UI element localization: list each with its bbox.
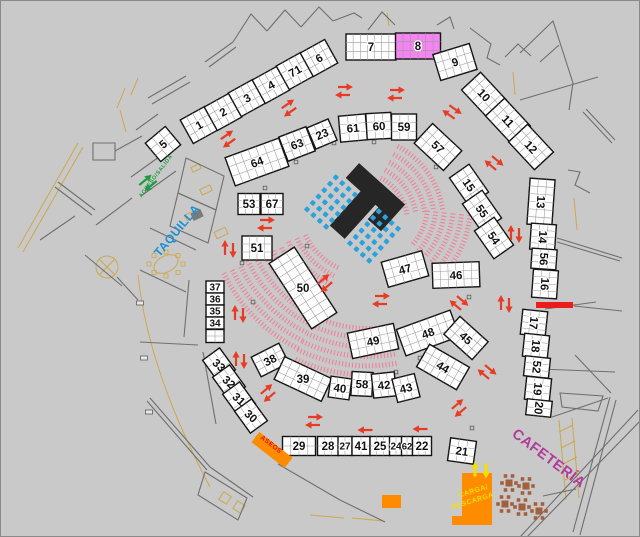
booth-34: 34 [206,317,224,330]
booth-number: 22 [416,441,429,453]
table-chair [517,484,521,488]
booth-number: 19 [530,382,543,396]
hatch-dash [467,219,472,220]
table-chair [541,516,545,520]
booth-grid [206,330,224,343]
booth-number: 59 [398,122,411,134]
table-chair [528,477,532,481]
table-top [506,480,513,487]
hatch-dash [425,211,430,212]
table-chair [504,488,508,492]
hatch-dash [459,215,464,216]
column-marker [434,165,438,169]
column-marker [251,300,255,304]
hatch-dash [347,353,348,358]
door-marker [146,410,153,414]
table-chair [496,502,500,506]
column-marker [263,186,267,190]
booth-36: 36 [206,293,224,306]
hatch-dash [342,361,343,366]
table-top [519,504,526,511]
table-chair [541,502,545,506]
booth-number: 25 [374,441,387,453]
booth-46: 46 [432,262,480,289]
booth-number: 17 [526,316,539,330]
table-chair [517,512,521,516]
table-top [536,508,543,515]
booth-14: 14 [530,223,557,251]
booth-16: 16 [532,269,559,299]
table-chair [504,474,508,478]
table-chair [524,498,528,502]
booth-number: 28 [322,441,335,453]
door-marker [137,301,144,305]
hatch-dash [440,208,445,209]
table-chair [500,509,504,513]
column-marker [372,140,376,144]
booth-13: 13 [527,178,555,226]
hatch-dash [442,213,447,214]
booth-number: 67 [266,199,279,211]
column-marker [467,295,471,299]
table-chair [513,505,517,509]
booth-35: 35 [206,305,224,318]
hatch-dash [344,352,345,357]
table-chair [511,474,515,478]
orange-block [382,495,401,508]
booth-number: 61 [346,123,360,136]
hatch-dash [384,353,385,358]
booth-19: 19 [524,376,551,401]
hatch-dash [347,371,348,376]
booth-number: 52 [529,360,542,374]
booth-number: 62 [402,441,413,452]
red-bar [536,302,573,308]
hatch-dash [346,362,347,367]
column-marker [294,160,298,164]
hatch-dash [459,218,464,219]
booth-number: 56 [536,252,549,266]
venue-floor-plan: 5123471678910111213145616171852192064632… [0,0,640,537]
hatch-dash [386,362,387,367]
booth-number: 39 [297,374,310,386]
hatch-dash [349,362,350,367]
column-marker [470,426,474,430]
table-chair [507,509,511,513]
table-chair [530,509,534,513]
venue-floor-plan-page: 5123471678910111213145616171852192064632… [0,0,640,537]
booth-number: 58 [355,379,369,392]
booth-number: 37 [209,283,221,294]
table-chair [524,512,528,516]
table-chair [517,498,521,502]
booth-43: 43 [392,374,420,403]
table-top [502,501,509,508]
hatch-dash [346,343,347,348]
table-chair [528,491,532,495]
booth-52: 52 [524,356,551,379]
hatch-dash [351,372,352,377]
booth-number: 21 [455,445,470,459]
booth-number: 36 [209,295,221,306]
booth-number: 18 [528,339,541,354]
booth-number: 16 [537,277,550,291]
booth-37: 37 [206,281,224,294]
booth-22: 22 [413,437,432,456]
booth-number: 34 [209,319,221,330]
hatch-dash [433,215,438,216]
table-chair [500,495,504,499]
booth-number: 42 [377,379,391,392]
booth-number: 20 [531,401,544,415]
booth-29: 29 [283,437,316,456]
booth-number: 7 [368,42,374,54]
booth-41: 41 [352,437,370,456]
booth-24: 24 [390,437,403,456]
booth-61: 61 [338,114,367,142]
booth-67: 67 [261,194,283,215]
booth-number: 41 [355,441,368,453]
booth-21: 21 [448,438,477,464]
column-marker [305,244,309,248]
booth-number: 50 [297,283,310,295]
booth-51: 51 [242,236,272,260]
table-chair [507,495,511,499]
booth-59: 59 [392,114,417,140]
booth-number: 60 [372,121,385,134]
booth-number: 29 [293,441,306,453]
booth-20: 20 [526,399,553,418]
booth-number: 24 [390,442,402,453]
booth-number: 14 [535,230,548,244]
hatch-dash [392,361,393,366]
table-chair [544,509,548,513]
hatch-dash [450,217,455,218]
table-chair [511,488,515,492]
table-chair [521,477,525,481]
booth-number: 27 [339,442,351,453]
column-marker [240,261,244,265]
table-chair [500,481,504,485]
hatch-dash [391,352,392,357]
table-chair [534,502,538,506]
booth-18: 18 [522,333,549,358]
booth-58: 58 [351,371,373,396]
booth-56: 56 [531,248,557,270]
hatch-dash [349,325,350,330]
booth-25: 25 [370,437,390,456]
hatch-dash [433,212,438,213]
booth-62: 62 [402,437,413,456]
booth-7: 7 [346,34,396,60]
booth-60: 60 [366,112,392,139]
hatch-dash [344,371,345,376]
table-chair [521,491,525,495]
hatch-dash [389,362,390,367]
booth-27: 27 [338,437,352,456]
booth-number: 53 [243,199,256,211]
table-chair [527,505,531,509]
door-marker [141,356,148,360]
table-top [523,483,530,490]
booth-number: 51 [251,243,264,255]
booth-53: 53 [238,194,260,215]
hatch-dash [441,216,446,217]
hatch-dash [424,214,429,215]
booth-number: 40 [333,382,347,396]
booth-number: 35 [209,307,221,318]
booth-number: 46 [449,270,462,282]
booth-40: 40 [328,376,352,400]
booth-28: 28 [318,437,339,456]
table-chair [531,484,535,488]
hatch-dash [387,353,388,358]
booth-number: 8 [415,41,422,53]
table-chair [534,516,538,520]
hatch-dash [450,214,455,215]
hatch-dash [353,325,354,330]
booth-number: 13 [533,195,546,209]
